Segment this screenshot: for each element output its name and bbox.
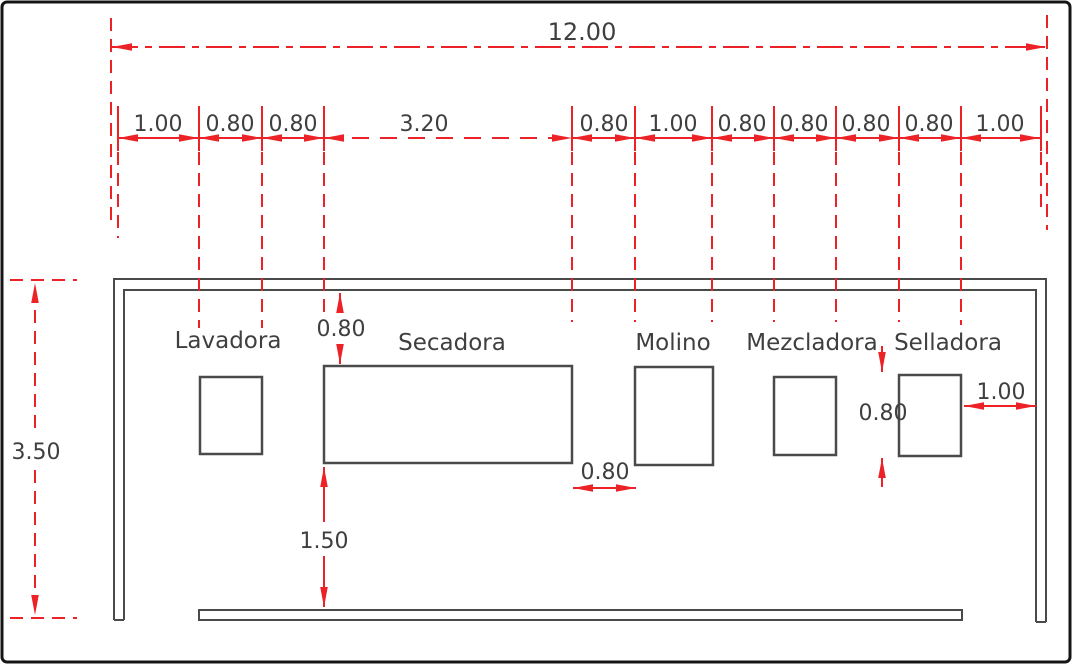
selladora-height-label: 0.80: [859, 401, 908, 426]
dimension-label: 0.80: [780, 112, 829, 137]
secadora-molino-gap-label: 0.80: [581, 460, 630, 485]
molino-box: [635, 367, 713, 465]
dimension-label: 0.80: [718, 112, 767, 137]
secadora-box: [324, 366, 572, 463]
work-bench-bar: [199, 610, 962, 620]
secadora-front-clearance-label: 1.50: [300, 529, 349, 554]
selladora-label: Selladora: [894, 330, 1002, 356]
dimension-label: 0.80: [206, 112, 255, 137]
dimension-label: 1.00: [134, 112, 183, 137]
mezcladora-box: [774, 377, 836, 455]
secadora-molino-gap-dimension: 0.80: [573, 460, 636, 488]
secadora-label: Secadora: [398, 330, 506, 356]
selladora-wall-gap-label: 1.00: [977, 380, 1026, 405]
dimension-label: 0.80: [842, 112, 891, 137]
dimension-label: 0.80: [580, 112, 629, 137]
mezcladora-label: Mezcladora: [746, 330, 877, 356]
total-width-dimension-label: 12.00: [548, 18, 617, 46]
lavadora-box: [200, 377, 262, 454]
lavadora-label: Lavadora: [175, 328, 282, 354]
dimension-label: 0.80: [269, 112, 318, 137]
secadora-top-gap-label: 0.80: [317, 317, 366, 342]
molino-label: Molino: [635, 330, 710, 356]
dimension-label: 0.80: [905, 112, 954, 137]
plan-canvas: Lavadora Secadora Molino Mezcladora Sell…: [0, 0, 1072, 664]
floor-plan-drawing: Lavadora Secadora Molino Mezcladora Sell…: [0, 0, 1072, 664]
selladora-box: [899, 375, 961, 456]
dimension-label: 3.20: [400, 112, 449, 137]
dimension-label: 1.00: [976, 112, 1025, 137]
room-height-label: 3.50: [12, 440, 61, 465]
dimension-label: 1.00: [649, 112, 698, 137]
